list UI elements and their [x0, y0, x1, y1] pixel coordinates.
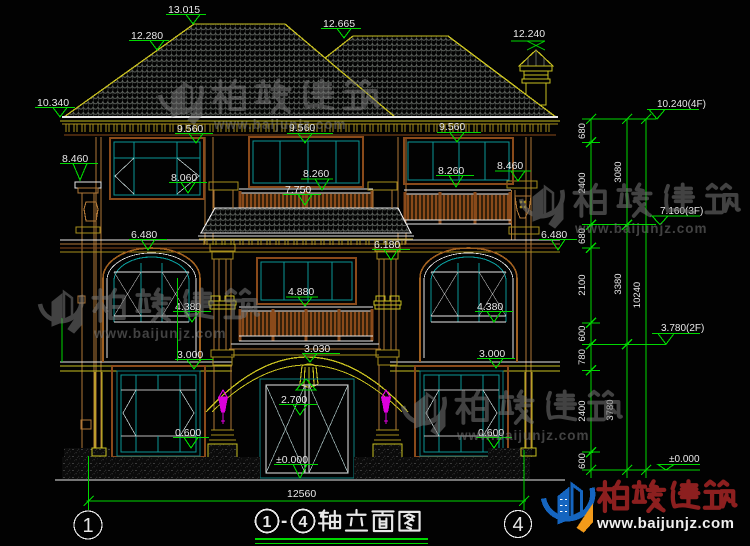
svg-text:8.260: 8.260	[303, 168, 329, 180]
svg-text:12.240: 12.240	[513, 28, 545, 40]
svg-text:±0.000: ±0.000	[669, 454, 700, 465]
svg-text:2100: 2100	[577, 274, 588, 295]
svg-text:600: 600	[577, 326, 588, 342]
svg-text:2400: 2400	[577, 400, 588, 421]
svg-text:9.560: 9.560	[439, 121, 465, 133]
svg-text:8.460: 8.460	[497, 160, 523, 172]
svg-text:4: 4	[512, 514, 523, 536]
svg-text:-: -	[281, 511, 287, 532]
svg-text:680: 680	[577, 123, 588, 139]
svg-text:www.baijunjz.com: www.baijunjz.com	[93, 326, 227, 341]
svg-text:3.780(2F): 3.780(2F)	[661, 323, 704, 334]
svg-text:www.baijunjz.com: www.baijunjz.com	[596, 515, 734, 532]
svg-text:4.880: 4.880	[288, 286, 314, 298]
svg-text:600: 600	[577, 453, 588, 469]
svg-text:1: 1	[82, 515, 93, 537]
svg-text:3380: 3380	[613, 273, 624, 294]
svg-text:780: 780	[577, 349, 588, 365]
svg-text:10240: 10240	[632, 282, 643, 308]
svg-text:www.baijunjz.com: www.baijunjz.com	[213, 117, 347, 132]
svg-text:12560: 12560	[287, 488, 316, 500]
svg-text:3080: 3080	[613, 161, 624, 182]
svg-text:www.baijunjz.com: www.baijunjz.com	[456, 428, 590, 443]
svg-text:4: 4	[299, 514, 308, 531]
svg-text:10.240(4F): 10.240(4F)	[657, 99, 706, 110]
svg-text:www.baijunjz.com: www.baijunjz.com	[574, 221, 708, 236]
svg-text:1: 1	[263, 514, 272, 531]
